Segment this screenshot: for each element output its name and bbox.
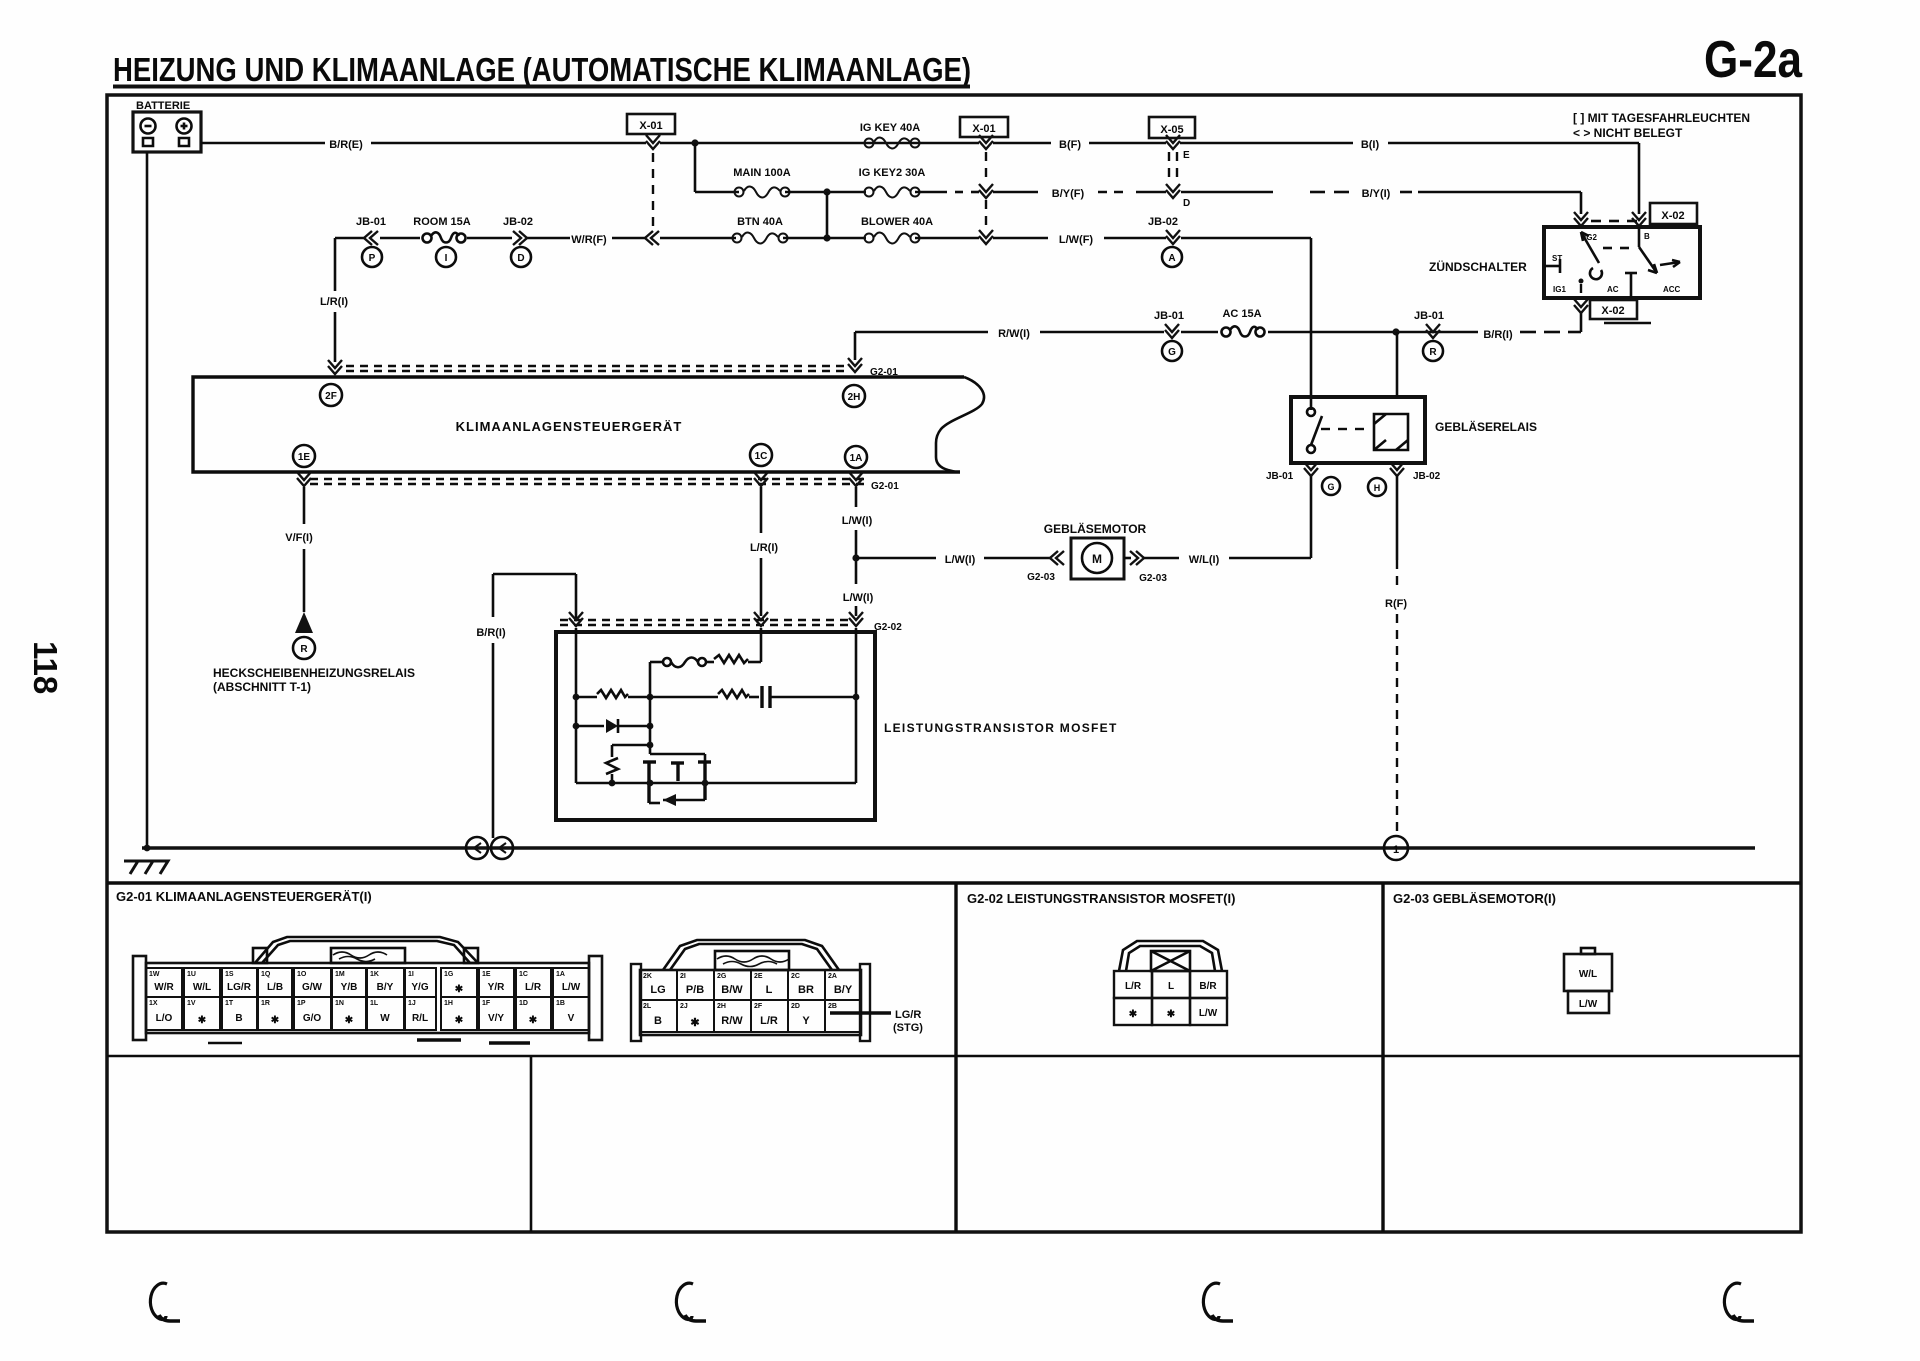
- svg-text:B/Y: B/Y: [377, 982, 394, 993]
- svg-text:1E: 1E: [298, 452, 311, 463]
- svg-text:B/W: B/W: [721, 984, 743, 996]
- svg-text:GEBLÄSERELAIS: GEBLÄSERELAIS: [1435, 419, 1537, 434]
- svg-text:1G: 1G: [444, 971, 454, 978]
- svg-text:R/W: R/W: [721, 1015, 743, 1027]
- svg-text:L/W(I): L/W(I): [842, 515, 873, 527]
- svg-text:ROOM 15A: ROOM 15A: [413, 216, 471, 228]
- svg-text:R: R: [1429, 347, 1437, 358]
- svg-text:L/W: L/W: [1199, 1008, 1218, 1019]
- svg-text:X-01: X-01: [972, 123, 995, 135]
- svg-text:L/O: L/O: [156, 1013, 173, 1024]
- svg-text:LEISTUNGSTRANSISTOR MOSFET: LEISTUNGSTRANSISTOR MOSFET: [884, 721, 1118, 735]
- svg-text:1B: 1B: [556, 1000, 565, 1007]
- svg-text:IG KEY 40A: IG KEY 40A: [860, 122, 920, 134]
- svg-text:G2-01: G2-01: [871, 481, 899, 492]
- svg-text:1O: 1O: [297, 971, 307, 978]
- svg-text:L: L: [766, 984, 773, 996]
- svg-text:2L: 2L: [643, 1003, 652, 1010]
- svg-text:W/R: W/R: [154, 982, 174, 993]
- svg-text:AC: AC: [1607, 285, 1619, 294]
- svg-text:G: G: [1168, 347, 1176, 358]
- svg-text:G2-03: G2-03: [1139, 573, 1167, 584]
- svg-text:JB-02: JB-02: [503, 216, 533, 228]
- svg-text:1W: 1W: [149, 971, 160, 978]
- svg-text:2G: 2G: [717, 973, 727, 980]
- svg-text:G2-03: G2-03: [1027, 572, 1055, 583]
- svg-text:G2-01 KLIMAANLAGENSTEUERGERÄT(: G2-01 KLIMAANLAGENSTEUERGERÄT(I): [116, 889, 372, 904]
- svg-text:M: M: [1092, 552, 1102, 566]
- svg-text:X-01: X-01: [639, 120, 662, 132]
- svg-text:✱: ✱: [529, 1015, 538, 1026]
- svg-text:1Q: 1Q: [261, 971, 271, 978]
- svg-text:R(F): R(F): [1385, 598, 1407, 610]
- svg-text:LG: LG: [650, 984, 665, 996]
- svg-text:L/W(I): L/W(I): [843, 592, 874, 604]
- svg-text:Y/B: Y/B: [341, 982, 358, 993]
- svg-text:1D: 1D: [519, 1000, 528, 1007]
- svg-text:B/R: B/R: [1199, 981, 1217, 992]
- svg-text:LG/R: LG/R: [227, 982, 252, 993]
- svg-text:B/R(I): B/R(I): [1483, 329, 1513, 341]
- svg-text:AC 15A: AC 15A: [1222, 308, 1261, 320]
- svg-text:2A: 2A: [828, 973, 837, 980]
- svg-text:P: P: [369, 253, 376, 264]
- svg-text:ZÜNDSCHALTER: ZÜNDSCHALTER: [1429, 259, 1527, 274]
- svg-text:2H: 2H: [717, 1003, 726, 1010]
- svg-text:KLIMAANLAGENSTEUERGERÄT: KLIMAANLAGENSTEUERGERÄT: [456, 419, 683, 434]
- svg-text:JB-02: JB-02: [1413, 471, 1441, 482]
- svg-text:✱: ✱: [1129, 1009, 1138, 1020]
- svg-text:JB-01: JB-01: [1154, 310, 1184, 322]
- svg-text:B/R(I): B/R(I): [476, 627, 506, 639]
- svg-text:L/R(I): L/R(I): [320, 296, 348, 308]
- svg-text:1L: 1L: [370, 1000, 379, 1007]
- svg-text:2I: 2I: [680, 973, 686, 980]
- svg-text:Y/G: Y/G: [411, 982, 428, 993]
- svg-text:B/Y: B/Y: [834, 984, 853, 996]
- svg-text:1U: 1U: [187, 971, 196, 978]
- svg-text:1A: 1A: [850, 453, 863, 464]
- svg-text:1C: 1C: [519, 971, 528, 978]
- svg-text:L/W(I): L/W(I): [945, 554, 976, 566]
- svg-text:JB-01: JB-01: [1414, 310, 1444, 322]
- svg-text:(STG): (STG): [893, 1022, 923, 1034]
- svg-text:1C: 1C: [755, 451, 768, 462]
- svg-text:B: B: [1644, 232, 1650, 241]
- svg-text:G2-02: G2-02: [874, 622, 902, 633]
- svg-text:B: B: [654, 1015, 662, 1027]
- svg-text:BTN 40A: BTN 40A: [737, 216, 783, 228]
- svg-text:[ ] MIT TAGESFAHRLEUCHTEN: [ ] MIT TAGESFAHRLEUCHTEN: [1573, 111, 1750, 125]
- svg-text:✱: ✱: [198, 1015, 207, 1026]
- svg-text:H: H: [1374, 483, 1381, 493]
- svg-text:A: A: [1168, 253, 1175, 264]
- svg-text:< > NICHT BELEGT: < > NICHT BELEGT: [1573, 126, 1683, 140]
- svg-text:GEBLÄSEMOTOR: GEBLÄSEMOTOR: [1044, 521, 1147, 536]
- svg-text:B(F): B(F): [1059, 139, 1081, 151]
- svg-text:2F: 2F: [325, 391, 337, 402]
- svg-text:1N: 1N: [335, 1000, 344, 1007]
- svg-text:LG/R: LG/R: [895, 1009, 921, 1021]
- svg-text:D: D: [517, 253, 524, 264]
- svg-text:ACC: ACC: [1663, 285, 1681, 294]
- svg-text:2K: 2K: [643, 973, 652, 980]
- svg-text:B(I): B(I): [1361, 139, 1380, 151]
- svg-text:G/W: G/W: [302, 982, 323, 993]
- svg-text:✱: ✱: [1167, 1009, 1176, 1020]
- svg-text:G2-03 GEBLÄSEMOTOR(I): G2-03 GEBLÄSEMOTOR(I): [1393, 891, 1556, 906]
- svg-text:P/B: P/B: [686, 984, 704, 996]
- svg-text:MAIN 100A: MAIN 100A: [733, 167, 791, 179]
- svg-text:1K: 1K: [370, 971, 379, 978]
- svg-text:R: R: [300, 644, 308, 655]
- svg-text:B/Y(F): B/Y(F): [1052, 188, 1085, 200]
- svg-text:1R: 1R: [261, 1000, 270, 1007]
- svg-text:1A: 1A: [556, 971, 565, 978]
- svg-text:R/W(I): R/W(I): [998, 328, 1030, 340]
- svg-text:G2-02 LEISTUNGSTRANSISTOR MOSF: G2-02 LEISTUNGSTRANSISTOR MOSFET(I): [967, 891, 1235, 906]
- svg-text:BR: BR: [798, 984, 814, 996]
- svg-text:L/R: L/R: [525, 982, 542, 993]
- svg-text:JB-02: JB-02: [1148, 216, 1178, 228]
- svg-text:HEIZUNG UND KLIMAANLAGE (AUTOM: HEIZUNG UND KLIMAANLAGE (AUTOMATISCHE KL…: [113, 51, 971, 88]
- svg-text:(ABSCHNITT T-1): (ABSCHNITT T-1): [213, 680, 311, 694]
- svg-text:1J: 1J: [408, 1000, 416, 1007]
- svg-text:B: B: [235, 1013, 242, 1024]
- svg-text:✱: ✱: [690, 1017, 699, 1029]
- svg-text:R/L: R/L: [412, 1013, 428, 1024]
- svg-text:✱: ✱: [345, 1015, 354, 1026]
- svg-text:X-05: X-05: [1160, 124, 1183, 136]
- svg-text:L/W: L/W: [1579, 999, 1598, 1010]
- svg-text:IG KEY2 30A: IG KEY2 30A: [859, 167, 926, 179]
- svg-text:1M: 1M: [335, 971, 345, 978]
- svg-text:2H: 2H: [848, 392, 861, 403]
- svg-text:2D: 2D: [791, 1003, 800, 1010]
- svg-text:I: I: [445, 253, 448, 264]
- svg-text:2J: 2J: [680, 1003, 688, 1010]
- svg-text:✱: ✱: [455, 984, 464, 995]
- svg-text:JB-01: JB-01: [1266, 471, 1294, 482]
- svg-text:W/L(I): W/L(I): [1189, 554, 1220, 566]
- svg-text:W/R(F): W/R(F): [571, 234, 607, 246]
- svg-text:G: G: [1327, 482, 1334, 492]
- svg-text:Y: Y: [802, 1015, 810, 1027]
- svg-text:X-02: X-02: [1661, 210, 1684, 222]
- svg-text:L/R: L/R: [760, 1015, 778, 1027]
- svg-text:1I: 1I: [408, 971, 414, 978]
- svg-text:G-2a: G-2a: [1704, 31, 1803, 89]
- svg-text:1T: 1T: [225, 1000, 234, 1007]
- svg-text:1X: 1X: [149, 1000, 158, 1007]
- svg-text:L/R(I): L/R(I): [750, 542, 778, 554]
- svg-text:118: 118: [27, 641, 64, 694]
- svg-text:JB-01: JB-01: [356, 216, 386, 228]
- svg-text:X-02: X-02: [1601, 305, 1624, 317]
- svg-text:2C: 2C: [791, 973, 800, 980]
- svg-text:L/W(F): L/W(F): [1059, 234, 1094, 246]
- svg-text:1S: 1S: [225, 971, 234, 978]
- svg-text:1H: 1H: [444, 1000, 453, 1007]
- svg-text:D: D: [1183, 198, 1190, 209]
- svg-text:2F: 2F: [754, 1003, 763, 1010]
- svg-text:1F: 1F: [482, 1000, 491, 1007]
- svg-text:1V: 1V: [187, 1000, 196, 1007]
- svg-text:L/W: L/W: [562, 982, 581, 993]
- svg-text:L/R: L/R: [1125, 981, 1142, 992]
- svg-text:2B: 2B: [828, 1003, 837, 1010]
- svg-text:L: L: [1168, 981, 1174, 992]
- svg-text:HECKSCHEIBENHEIZUNGSRELAIS: HECKSCHEIBENHEIZUNGSRELAIS: [213, 666, 415, 680]
- svg-text:1: 1: [1393, 844, 1399, 856]
- svg-text:B/Y(I): B/Y(I): [1362, 188, 1391, 200]
- svg-text:✱: ✱: [271, 1015, 280, 1026]
- svg-text:BLOWER 40A: BLOWER 40A: [861, 216, 933, 228]
- svg-text:V: V: [568, 1013, 575, 1024]
- svg-text:V/F(I): V/F(I): [285, 532, 313, 544]
- svg-text:B/R(E): B/R(E): [329, 139, 363, 151]
- svg-text:V/Y: V/Y: [488, 1013, 504, 1024]
- svg-text:2E: 2E: [754, 973, 763, 980]
- svg-text:W/L: W/L: [193, 982, 211, 993]
- svg-text:W: W: [380, 1013, 390, 1024]
- svg-text:✱: ✱: [455, 1015, 464, 1026]
- svg-text:1E: 1E: [482, 971, 491, 978]
- svg-text:E: E: [1183, 150, 1190, 161]
- svg-text:L/B: L/B: [267, 982, 283, 993]
- svg-text:W/L: W/L: [1579, 969, 1597, 980]
- svg-text:Y/R: Y/R: [488, 982, 505, 993]
- svg-text:1P: 1P: [297, 1000, 306, 1007]
- svg-text:G/O: G/O: [303, 1013, 322, 1024]
- svg-text:BATTERIE: BATTERIE: [136, 100, 190, 112]
- svg-text:IG1: IG1: [1553, 285, 1566, 294]
